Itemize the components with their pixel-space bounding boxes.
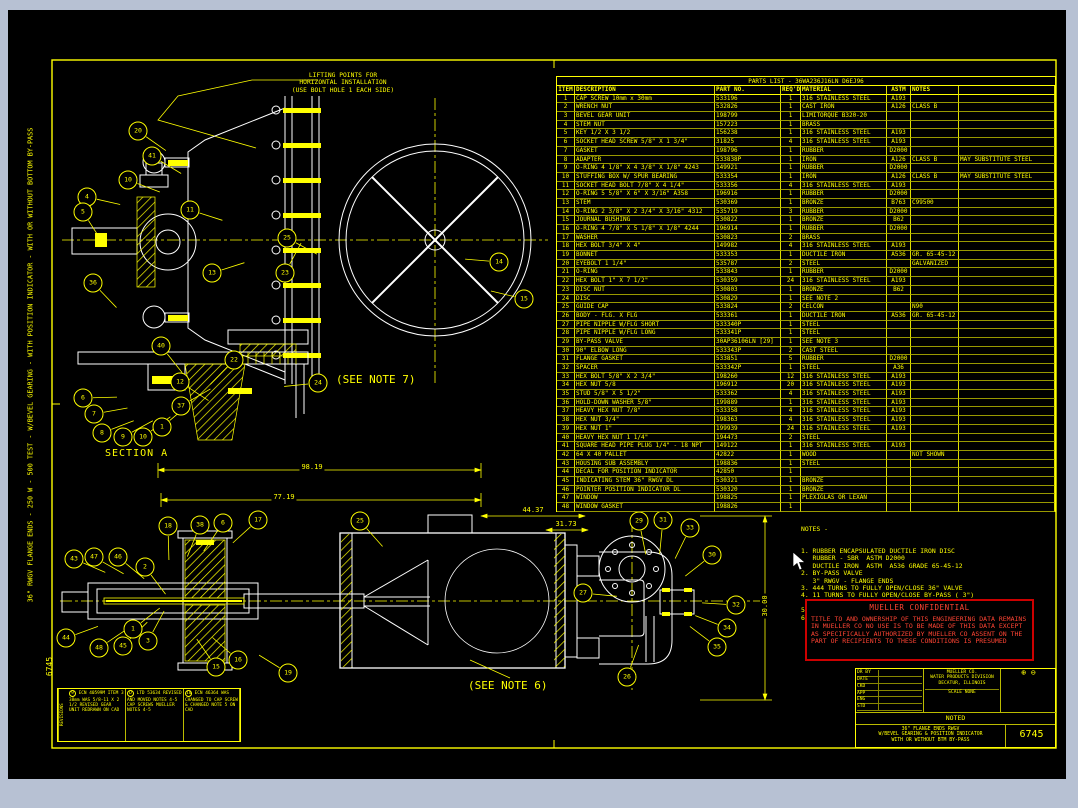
parts-cell: 2: [557, 103, 575, 112]
callout-bubble: 2: [136, 558, 155, 577]
parts-cell: GUIDE CAP: [575, 303, 715, 312]
title-block-field: DR BY: [857, 670, 922, 677]
confidential-body: TITLE TO AND OWNERSHIP OF THIS ENGINEERI…: [811, 616, 1028, 646]
parts-cell: 7: [557, 147, 575, 156]
parts-cell: 316 STAINLESS STEEL: [801, 425, 887, 434]
parts-cell: D2000: [887, 147, 911, 156]
parts-cell: 24: [557, 295, 575, 304]
field-label: DR BY: [857, 670, 879, 676]
parts-cell: 530823: [715, 234, 781, 243]
parts-cell: [911, 477, 959, 486]
parts-cell: [887, 234, 911, 243]
parts-cell: HEX NUT 5/8: [575, 381, 715, 390]
parts-cell: 4: [781, 138, 801, 147]
parts-cell: IRON: [801, 173, 887, 182]
parts-cell: 43: [557, 460, 575, 469]
parts-cell: D2000: [887, 164, 911, 173]
parts-row: 45INDICATING STEM 36" RWGV DL5303211BRON…: [557, 477, 1055, 486]
parts-cell: 198796: [715, 147, 781, 156]
parts-cell: 36: [557, 399, 575, 408]
parts-cell: [959, 381, 1055, 390]
parts-cell: [959, 355, 1055, 364]
parts-cell: BY-PASS VALVE: [575, 338, 715, 347]
parts-row: 34HEX NUT 5/819691220316 STAINLESS STEEL…: [557, 381, 1055, 390]
parts-cell: HOLD-DOWN WASHER 5/8": [575, 399, 715, 408]
parts-cell: 29: [557, 338, 575, 347]
parts-cell: 90° ELBOW LONG: [575, 347, 715, 356]
parts-cell: CAST IRON: [801, 103, 887, 112]
parts-cell: [911, 434, 959, 443]
parts-cell: HEX BOLT 5/8" X 2 3/4": [575, 373, 715, 382]
dim-98-19: 98.19: [299, 463, 324, 471]
parts-cell: 533838P: [715, 156, 781, 165]
parts-cell: ITEM: [557, 86, 575, 95]
callout-bubble: 31: [654, 511, 673, 530]
parts-cell: 1: [781, 312, 801, 321]
parts-cell: WINDOW GASKET: [575, 503, 715, 512]
parts-cell: A193: [887, 407, 911, 416]
parts-cell: 31825: [715, 138, 781, 147]
parts-cell: D2000: [887, 190, 911, 199]
parts-cell: WASHER: [575, 234, 715, 243]
parts-cell: RUBBER: [801, 190, 887, 199]
parts-cell: [959, 442, 1055, 451]
callout-bubble: 13: [203, 264, 222, 283]
parts-cell: BRONZE: [801, 286, 887, 295]
parts-cell: [959, 373, 1055, 382]
parts-cell: [911, 486, 959, 495]
parts-cell: [801, 468, 887, 477]
callout-bubble: 25: [278, 229, 297, 248]
parts-cell: 198363: [715, 416, 781, 425]
parts-cell: HOUSING SUB ASSEMBLY: [575, 460, 715, 469]
parts-cell: 1: [781, 460, 801, 469]
parts-cell: STEM: [575, 199, 715, 208]
field-label: CKD: [857, 684, 879, 690]
parts-cell: 530822: [715, 216, 781, 225]
parts-cell: 1: [781, 486, 801, 495]
parts-cell: [959, 268, 1055, 277]
parts-row: 44DECAL FOR POSITION INDICATOR428501: [557, 468, 1055, 477]
parts-cell: [959, 138, 1055, 147]
parts-cell: [911, 468, 959, 477]
parts-cell: [959, 242, 1055, 251]
parts-cell: [911, 286, 959, 295]
callout-bubble: 33: [681, 519, 700, 538]
parts-cell: NOT SHOWN: [911, 451, 959, 460]
parts-row: 14O-RING 2 3/8" X 2 3/4" X 3/16" 4312535…: [557, 208, 1055, 217]
parts-cell: [959, 347, 1055, 356]
parts-cell: 157223: [715, 121, 781, 130]
parts-cell: IRON: [801, 156, 887, 165]
parts-cell: 533342P: [715, 364, 781, 373]
parts-cell: C99500: [911, 199, 959, 208]
parts-cell: [887, 477, 911, 486]
parts-cell: 533353: [715, 251, 781, 260]
callout-bubble: 8: [93, 424, 112, 443]
parts-cell: [887, 260, 911, 269]
parts-cell: 23: [557, 286, 575, 295]
dim-44-37: 44.37: [520, 506, 545, 514]
parts-cell: 1: [781, 442, 801, 451]
parts-cell: A126: [887, 103, 911, 112]
parts-cell: BRONZE: [801, 486, 887, 495]
parts-cell: 1: [781, 321, 801, 330]
parts-row: 6SOCKET HEAD SCREW 5/8" X 1 3/4"31825431…: [557, 138, 1055, 147]
parts-row: 10STUFFING BOX W/ SPUR BEARING5333541IRO…: [557, 173, 1055, 182]
field-label: STD: [857, 704, 879, 710]
parts-cell: 4: [781, 242, 801, 251]
parts-cell: 4: [781, 416, 801, 425]
parts-cell: 30AP36106LN [29]: [715, 338, 781, 347]
parts-cell: HEX NUT 1": [575, 425, 715, 434]
callout-bubble: 48: [90, 639, 109, 658]
parts-cell: 1: [781, 268, 801, 277]
parts-cell: 533196: [715, 95, 781, 104]
parts-cell: [911, 364, 959, 373]
parts-row: 31FLANGE GASKET5338515RUBBERD2000: [557, 355, 1055, 364]
parts-cell: [911, 338, 959, 347]
parts-cell: KEY 1/2 X 3 1/2: [575, 129, 715, 138]
drawing-title: 36" FLANGE ENDS RWGV W/BEVEL GEARING & P…: [856, 725, 1006, 747]
parts-cell: HEX BOLT 1" X 7 1/2": [575, 277, 715, 286]
parts-cell: 8: [557, 156, 575, 165]
parts-cell: A193: [887, 242, 911, 251]
parts-cell: 31: [557, 355, 575, 364]
dim-77-19: 77.19: [271, 493, 296, 501]
parts-cell: 5: [781, 355, 801, 364]
callout-bubble: 11: [181, 201, 200, 220]
parts-row: 32SPACER533342P1STEELA36: [557, 364, 1055, 373]
parts-cell: STEM NUT: [575, 121, 715, 130]
parts-cell: STEEL: [801, 364, 887, 373]
parts-row: 17WASHER5308232BRASS: [557, 234, 1055, 243]
parts-cell: [911, 95, 959, 104]
parts-row: 38HEX NUT 3/4"1983634316 STAINLESS STEEL…: [557, 416, 1055, 425]
parts-cell: SOCKET HEAD SCREW 5/8" X 1 3/4": [575, 138, 715, 147]
callout-bubble: 20: [129, 122, 148, 141]
parts-cell: 149982: [715, 242, 781, 251]
parts-cell: 1: [781, 199, 801, 208]
parts-cell: 533341P: [715, 329, 781, 338]
parts-cell: 530829: [715, 295, 781, 304]
parts-cell: 530320: [715, 486, 781, 495]
parts-cell: 533354: [715, 173, 781, 182]
parts-cell: [959, 225, 1055, 234]
parts-cell: [959, 407, 1055, 416]
parts-cell: STUFFING BOX W/ SPUR BEARING: [575, 173, 715, 182]
parts-cell: [959, 251, 1055, 260]
parts-cell: [959, 199, 1055, 208]
parts-row: 25GUIDE CAP5338242CELCONN90: [557, 303, 1055, 312]
parts-cell: [959, 486, 1055, 495]
parts-cell: 1: [781, 338, 801, 347]
parts-cell: 533343P: [715, 347, 781, 356]
parts-cell: 1: [781, 147, 801, 156]
parts-cell: [959, 338, 1055, 347]
parts-cell: PIPE NIPPLE W/FLG LONG: [575, 329, 715, 338]
parts-cell: 316 STAINLESS STEEL: [801, 416, 887, 425]
parts-cell: [911, 416, 959, 425]
parts-cell: [959, 295, 1055, 304]
parts-cell: [911, 321, 959, 330]
parts-cell: O-RING 4 7/8" X 5 1/8" X 1/8" 4244: [575, 225, 715, 234]
parts-list-title: PARTS LIST - 36WA236J16LN D6EJ96: [557, 77, 1055, 86]
parts-cell: D2000: [887, 208, 911, 217]
parts-header-row: ITEMDESCRIPTIONPART NO.REQ'DMATERIALASTM…: [557, 86, 1055, 95]
parts-cell: 5: [557, 129, 575, 138]
parts-row: 43HOUSING SUB ASSEMBLY1988361STEEL: [557, 460, 1055, 469]
parts-cell: 14: [557, 208, 575, 217]
parts-cell: 4: [781, 390, 801, 399]
callout-bubble: 44: [57, 629, 76, 648]
parts-cell: FLANGE GASKET: [575, 355, 715, 364]
parts-cell: [959, 234, 1055, 243]
parts-cell: DECAL FOR POSITION INDICATOR: [575, 468, 715, 477]
parts-cell: 42822: [715, 451, 781, 460]
revision-text: ECN 40599M ITEM 3 38mm WAS 5/8-11 X 2 1/…: [69, 691, 124, 713]
parts-cell: [911, 242, 959, 251]
parts-cell: 530369: [715, 199, 781, 208]
parts-cell: [911, 164, 959, 173]
parts-cell: RUBBER: [801, 208, 887, 217]
parts-cell: 198825: [715, 494, 781, 503]
parts-cell: A536: [887, 251, 911, 260]
parts-cell: 22: [557, 277, 575, 286]
callout-bubble: 12: [171, 373, 190, 392]
parts-cell: [911, 216, 959, 225]
parts-cell: NOTES: [911, 86, 959, 95]
parts-cell: A193: [887, 425, 911, 434]
parts-cell: [959, 208, 1055, 217]
parts-cell: MAY SUBSTITUTE STEEL: [959, 173, 1055, 182]
parts-cell: 2: [781, 234, 801, 243]
parts-cell: 42: [557, 451, 575, 460]
parts-cell: A193: [887, 442, 911, 451]
parts-cell: [959, 95, 1055, 104]
parts-cell: STUD 5/8" X 5 1/2": [575, 390, 715, 399]
title-block-field: DATE: [857, 677, 922, 684]
scale-field: SCALE NONE: [925, 689, 999, 695]
parts-cell: [911, 190, 959, 199]
dim-30-00: 30.00: [761, 593, 769, 618]
parts-cell: [959, 112, 1055, 121]
parts-row: 24DISC5308291SEE NOTE 2: [557, 295, 1055, 304]
parts-cell: 25: [557, 303, 575, 312]
parts-row: 1CAP SCREW 10mm x 30mm5331961316 STAINLE…: [557, 95, 1055, 104]
parts-cell: 48: [557, 503, 575, 512]
parts-cell: [911, 373, 959, 382]
parts-cell: [887, 321, 911, 330]
parts-row: 16O-RING 4 7/8" X 5 1/8" X 1/8" 42441969…: [557, 225, 1055, 234]
drawing-number: 6745: [1006, 725, 1057, 747]
callout-bubble: 3: [139, 632, 158, 651]
callout-bubble: 15: [207, 658, 226, 677]
parts-cell: WINDOW: [575, 494, 715, 503]
edge-drawing-number: 6745: [45, 657, 54, 676]
parts-cell: 198836: [715, 460, 781, 469]
parts-cell: POINTER POSITION INDICATOR DL: [575, 486, 715, 495]
parts-cell: 1: [557, 95, 575, 104]
parts-cell: 47: [557, 494, 575, 503]
parts-cell: [911, 277, 959, 286]
callout-bubble: 18: [159, 517, 178, 536]
parts-cell: PLEXIGLAS OR LEXAN: [801, 494, 887, 503]
parts-cell: 530321: [715, 477, 781, 486]
parts-cell: A193: [887, 277, 911, 286]
parts-cell: 4: [781, 407, 801, 416]
parts-cell: [959, 121, 1055, 130]
parts-cell: 316 STAINLESS STEEL: [801, 442, 887, 451]
parts-row: 23DISC NUT5308031BRONZEB62: [557, 286, 1055, 295]
parts-row: 5KEY 1/2 X 3 1/21562381316 STAINLESS STE…: [557, 129, 1055, 138]
parts-cell: A193: [887, 129, 911, 138]
parts-row: 12O-RING 5 5/8" X 6" X 3/16" A3581969161…: [557, 190, 1055, 199]
parts-cell: 1: [781, 225, 801, 234]
parts-cell: 316 STAINLESS STEEL: [801, 129, 887, 138]
parts-cell: 1: [781, 95, 801, 104]
parts-row: 46POINTER POSITION INDICATOR DL5303201BR…: [557, 486, 1055, 495]
parts-cell: 41: [557, 442, 575, 451]
parts-cell: STEEL: [801, 260, 887, 269]
parts-cell: [911, 425, 959, 434]
parts-cell: [887, 347, 911, 356]
parts-cell: 2: [781, 303, 801, 312]
parts-cell: 13: [557, 199, 575, 208]
parts-cell: [959, 182, 1055, 191]
parts-cell: [887, 338, 911, 347]
parts-cell: D2000: [887, 268, 911, 277]
parts-cell: 1: [781, 121, 801, 130]
callout-bubble: 25: [351, 512, 370, 531]
callout-bubble: 22: [225, 351, 244, 370]
parts-cell: A36: [887, 364, 911, 373]
parts-cell: [911, 208, 959, 217]
parts-cell: [959, 164, 1055, 173]
parts-cell: [959, 494, 1055, 503]
parts-row: 22HEX BOLT 1" X 7 1/2"53035924316 STAINL…: [557, 277, 1055, 286]
parts-row: 4STEM NUT1572231BRASS: [557, 121, 1055, 130]
parts-row: 18HEX BOLT 3/4" X 4"1499824316 STAINLESS…: [557, 242, 1055, 251]
parts-cell: [911, 381, 959, 390]
parts-cell: 198260: [715, 373, 781, 382]
revision-text: ECN 46364 WAS CHANGED TO CAP SCREW & CHA…: [185, 691, 238, 713]
callout-bubble: 1: [153, 418, 172, 437]
parts-cell: 1: [781, 364, 801, 373]
parts-cell: A193: [887, 381, 911, 390]
parts-cell: STEEL: [801, 460, 887, 469]
parts-cell: [959, 329, 1055, 338]
parts-cell: REQ'D: [781, 86, 801, 95]
parts-cell: 18: [557, 242, 575, 251]
section-a-label: SECTION A: [105, 448, 168, 459]
callout-bubble: 7: [85, 405, 104, 424]
parts-cell: [959, 277, 1055, 286]
parts-cell: PIPE NIPPLE W/FLG SHORT: [575, 321, 715, 330]
parts-cell: 16: [557, 225, 575, 234]
parts-row: 3090° ELBOW LONG533343P2CAST STEEL: [557, 347, 1055, 356]
edge-description-text: 36" RWGV FLANGE ENDS - 250 W - 500 TEST …: [27, 128, 35, 603]
parts-cell: MAY SUBSTITUTE STEEL: [959, 156, 1055, 165]
parts-cell: CELCON: [801, 303, 887, 312]
parts-cell: ASTM: [887, 86, 911, 95]
title-block-field: CKD: [857, 684, 922, 691]
parts-row: 15JOURNAL BUSHING5308221BRONZEB62: [557, 216, 1055, 225]
parts-cell: 1: [781, 451, 801, 460]
mouse-cursor: [793, 552, 807, 572]
parts-cell: 196912: [715, 381, 781, 390]
callout-bubble: 34: [718, 619, 737, 638]
parts-cell: [911, 129, 959, 138]
parts-cell: [911, 112, 959, 121]
callout-bubble: 35: [708, 638, 727, 657]
parts-cell: [887, 486, 911, 495]
parts-cell: A126: [887, 156, 911, 165]
parts-cell: [959, 390, 1055, 399]
parts-cell: 24: [781, 277, 801, 286]
parts-cell: [887, 451, 911, 460]
parts-cell: LIMITORQUE B320-20: [801, 112, 887, 121]
parts-cell: BRONZE: [801, 199, 887, 208]
parts-cell: 10: [557, 173, 575, 182]
company-location: DECATUR, ILLINOIS: [925, 681, 999, 686]
parts-cell: [959, 216, 1055, 225]
parts-cell: 1: [781, 503, 801, 512]
field-label: DATE: [857, 677, 879, 683]
revision-entry: 10 ECN 46364 WAS CHANGED TO CAP SCREW & …: [184, 689, 240, 741]
callout-bubble: 47: [85, 548, 104, 567]
parts-cell: 530359: [715, 277, 781, 286]
parts-cell: 1: [781, 295, 801, 304]
parts-cell: 3: [781, 208, 801, 217]
parts-cell: 35: [557, 390, 575, 399]
revision-text: LTD 53634 REVISED AND MOVED NOTES 4-5 CA…: [127, 691, 182, 713]
parts-cell: DUCTILE IRON: [801, 251, 887, 260]
parts-cell: [959, 460, 1055, 469]
title-block: DR BYDATECKDAPPENGSTD MUELLER CO. WATER …: [855, 668, 1056, 748]
parts-row: 19BONNET5333531DUCTILE IRONA536GR. 65-45…: [557, 251, 1055, 260]
parts-cell: 46: [557, 486, 575, 495]
projection-symbol-icon: ⊕ ⊖: [1002, 670, 1055, 675]
parts-cell: 21: [557, 268, 575, 277]
parts-cell: [887, 295, 911, 304]
parts-cell: A126: [887, 173, 911, 182]
parts-cell: [959, 477, 1055, 486]
parts-cell: BEVEL GEAR UNIT: [575, 112, 715, 121]
parts-cell: DISC: [575, 295, 715, 304]
parts-cell: [911, 121, 959, 130]
parts-cell: O-RING 5 5/8" X 6" X 3/16" A358: [575, 190, 715, 199]
dim-31-73: 31.73: [553, 520, 578, 528]
parts-cell: 33: [557, 373, 575, 382]
field-label: ENG: [857, 697, 879, 703]
see-note-6-label: (SEE NOTE 6): [468, 679, 547, 692]
parts-row: 26BODY - FLG. X FLG5333611DUCTILE IRONA5…: [557, 312, 1055, 321]
parts-cell: 194473: [715, 434, 781, 443]
parts-cell: 2: [781, 260, 801, 269]
title-block-field: STD: [857, 704, 922, 711]
parts-cell: [911, 329, 959, 338]
parts-cell: 535787: [715, 260, 781, 269]
parts-cell: 532826: [715, 103, 781, 112]
cad-viewer-page: { "colors": {"line_yellow": "#ffff00", "…: [0, 0, 1078, 808]
parts-cell: A193: [887, 373, 911, 382]
parts-cell: 199889: [715, 399, 781, 408]
parts-cell: 316 STAINLESS STEEL: [801, 277, 887, 286]
parts-cell: 1: [781, 190, 801, 199]
revision-entry: D LTD 53634 REVISED AND MOVED NOTES 4-5 …: [126, 689, 184, 741]
parts-cell: HEAVY HEX NUT 1 1/4": [575, 434, 715, 443]
